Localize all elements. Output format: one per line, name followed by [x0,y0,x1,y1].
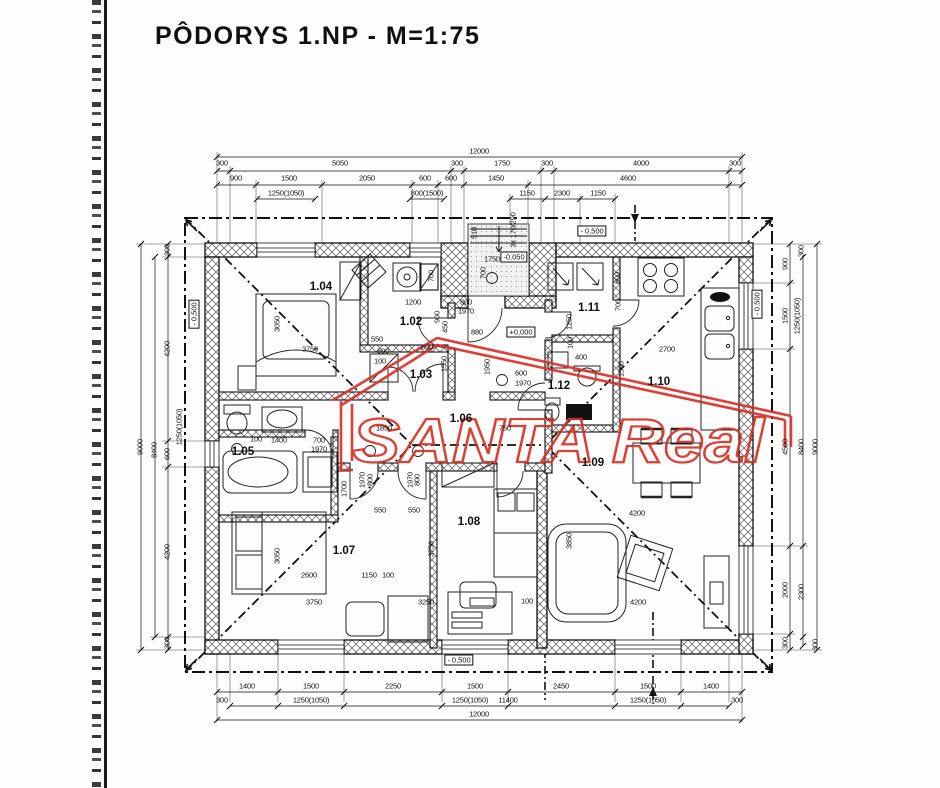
room-label: 1.06 [450,413,472,425]
level-marker: +0,000 [506,327,535,338]
annotation-label: 700 [614,299,623,311]
annotation-label: 1250 [565,314,574,330]
dimension-label: 900 [781,258,790,270]
annotation-label: 2600 [301,571,317,580]
room-label: 1.10 [648,376,670,388]
dimension-label: 300 [163,637,172,649]
annotation-label: 1750 [484,255,500,264]
dimension-label: 1500 [281,174,297,183]
dimension-label: 300 [451,159,463,168]
annotation-label: 1950 [483,359,492,375]
annotation-label: 510 [470,227,479,239]
dimension-label: 9000 [811,439,820,455]
annotation-label: 100 [382,571,394,580]
annotation-label: 600 [613,272,622,284]
dimension-label: 2000 [781,582,790,598]
dimension-label: 300 [729,159,741,168]
annotation-label: 1970 [458,307,474,316]
dimension-label: 2050 [359,174,375,183]
annotation-label: 3750 [306,598,322,607]
dimension-label: 1400 [239,682,255,691]
annotation-label: 3050 [273,548,282,564]
dimension-label: 8400 [150,442,159,458]
dimension-label: 2300 [554,189,570,198]
dimension-label: 1500 [467,682,483,691]
room-label: 1.05 [232,446,254,458]
level-marker: - 0,500 [577,226,606,237]
dimension-label: 5050 [332,159,348,168]
scanned-floor-plan-page: PÔDORYS 1.NP - M=1:75 [0,0,940,788]
door-tag-circle [497,375,508,386]
dimension-label: 12000 [469,710,489,719]
dimension-label: 1250(1050) [175,409,184,445]
room-label: 1.09 [582,457,604,469]
annotation-label: 3050 [273,316,282,332]
dimension-label: 9000 [136,439,145,455]
dimension-label: 600 [445,174,457,183]
annotation-label: 1850 [376,424,392,433]
annotation-label: 1550 [440,356,449,372]
dimension-label: 1250(1050) [452,696,488,705]
annotation-label: 700 [427,270,436,282]
dimension-label: 900 [230,174,242,183]
dimension-label: 2450 [553,682,569,691]
dimension-label: 1500 [640,682,656,691]
dimension-label: 4000 [633,159,649,168]
room-label: 1.07 [333,545,355,557]
annotation-label: 100 [374,357,386,366]
dimension-label: 300 [731,696,743,705]
dimension-label: 1500 [303,682,319,691]
dimension-label: 1500 [781,308,790,324]
dimension-label: 1150 [590,189,605,198]
annotation-label: 100 [250,435,262,444]
room-label: 1.12 [548,380,570,392]
room-label: 1.03 [410,369,432,381]
dimension-label: 1750 [494,159,510,168]
annotation-label: 1400 [271,436,287,445]
floor-plan-drawing: SANTA Real [0,0,940,788]
dimension-label: 300 [797,245,806,257]
annotation-label: 3750 [427,541,436,557]
annotation-label: 450 [441,321,450,333]
dimension-label: 300 [541,159,553,168]
room-label: 1.04 [310,281,332,293]
annotation-label: 800 [366,474,375,486]
annotation-label: 800 [413,474,422,486]
annotation-label: 550 [371,335,383,344]
annotation-label: 1970 [311,445,327,454]
dimension-label: 600 [163,448,172,460]
annotation-label: 3850 [565,533,574,549]
annotation-label: 800 [421,343,433,352]
dimension-label: 4200 [163,544,172,560]
annotation-label: 400 [575,353,587,362]
annotation-label: 880 [471,328,483,337]
dimension-label: 11400 [498,696,517,705]
annotation-label: 700 [313,436,325,445]
dimension-label: 300 [811,639,820,651]
level-marker: - 0,500 [189,299,200,328]
annotation-label: 750 [499,424,511,433]
annotation-label: 4200 [630,598,646,607]
annotation-label: 3750 [302,345,318,354]
dimension-label: 800(1500) [411,189,443,198]
annotation-label: 4200 [629,509,645,518]
annotation-label: 2700 [659,345,675,354]
annotation-label: 550 [374,506,386,515]
dimension-label: 1250(1050) [630,696,666,705]
annotation-label: 550 [408,506,420,515]
annotation-label: 600 [515,369,527,378]
annotation-label: 700 [479,267,488,279]
dimension-label: 300 [216,696,228,705]
annotation-label: 1200 [405,298,421,307]
room-label: 1.08 [458,516,480,528]
annotation-label: 1970 [515,379,531,388]
dimension-label: 1450 [488,174,504,183]
level-marker: - 0,500 [444,655,473,666]
dimension-label: 1400 [703,682,719,691]
dimension-label: 2250 [385,682,401,691]
level-marker: -0,050 [500,252,527,263]
annotation-label: 1150 [361,571,376,580]
dimension-label: 4500 [781,439,790,455]
annotation-label: 3x 170/290 [509,212,518,247]
dimension-label: 1250(1050) [268,189,304,198]
annotation-label: 600 [377,347,389,356]
dimension-label: 600 [419,174,431,183]
dimension-label: 8400 [797,439,806,455]
room-label: 1.02 [400,316,422,328]
dimension-label: 1150 [519,189,534,198]
dimension-label: 300 [781,637,790,649]
dimension-label: 300 [216,159,228,168]
room-label: 1.11 [578,302,600,314]
dimension-label: 2300 [797,584,806,600]
dimension-label: 4600 [620,174,636,183]
dimension-label: 1250(1050) [793,298,802,334]
dimension-label: 1250(1050) [293,696,329,705]
dimension-label: 300 [163,244,172,256]
annotation-label: 1700 [340,481,349,497]
annotation-label: 1550 [617,361,626,377]
watermark-text: SANTA Real [352,407,766,476]
dimension-label: 4200 [163,341,172,357]
dimension-label: 12000 [469,147,489,156]
annotation-label: 800 [460,298,472,307]
annotation-label: 100 [521,597,533,606]
annotation-label: 3250 [418,598,434,607]
annotation-label: 100 [566,337,575,349]
level-marker: - 0,500 [752,289,763,318]
